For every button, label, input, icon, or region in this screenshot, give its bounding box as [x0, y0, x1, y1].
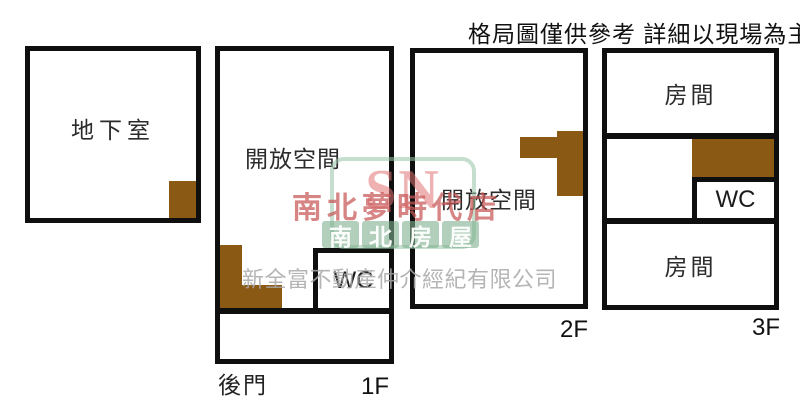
f2-stairs-vertical: [557, 131, 583, 196]
plan-basement: 地下室: [25, 46, 201, 223]
floor-plan-image: 格局圖僅供參考 詳細以現場為主 地下室 開放空間 WC 後門 1F 開放空間 2…: [0, 0, 800, 416]
f1-wc-label: WC: [334, 267, 374, 295]
f3-wc-label: WC: [716, 186, 756, 214]
plan-1f: 開放空間 WC: [215, 46, 394, 364]
f1-wc-room: WC: [313, 248, 389, 308]
f3-stairs: [692, 139, 774, 177]
f3-room-bottom-label: 房間: [607, 224, 774, 305]
f1-floor-tag: 1F: [361, 373, 389, 401]
plan-2f: 開放空間: [410, 48, 588, 309]
plan-3f: 房間 WC 房間: [602, 48, 779, 310]
basement-stairs: [169, 181, 196, 218]
f1-corridor-wall: [220, 308, 389, 314]
f1-back-door-label: 後門: [218, 366, 268, 400]
f1-stairs-horizontal: [220, 285, 282, 308]
f3-room-top-label: 房間: [607, 53, 774, 133]
f2-open-space-label: 開放空間: [441, 181, 537, 215]
f1-open-space-label: 開放空間: [245, 140, 341, 174]
f2-floor-tag: 2F: [560, 316, 588, 344]
f3-floor-tag: 3F: [752, 314, 780, 342]
disclaimer-text: 格局圖僅供參考 詳細以現場為主: [468, 15, 800, 49]
f3-wc-room: WC: [692, 177, 774, 218]
